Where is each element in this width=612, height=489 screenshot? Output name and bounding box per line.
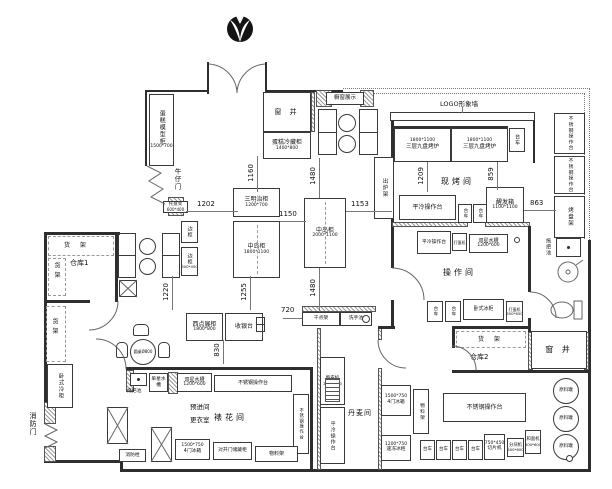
brand-logo: [227, 16, 253, 42]
store1-door-arc: [89, 301, 118, 330]
saloon-door-zigzag: [147, 166, 165, 204]
overlay-graphics: [0, 0, 612, 489]
entrance-door-arc: [237, 64, 265, 93]
entrance-door-arc: [209, 64, 237, 93]
oproom-door-arc: [392, 268, 424, 300]
hand-basin-tap: [576, 260, 583, 265]
store2-door-arc: [452, 346, 476, 370]
danish-door-arc: [378, 340, 406, 368]
floor-plan: LOGO形象墙 橱窗展示 窗 井 蛋糕冷藏柜 1400*800 蛋糕模型柜 15…: [0, 0, 612, 489]
hand-basin: [558, 262, 578, 282]
toilet-tank: [574, 301, 582, 319]
preroom-door-arc: [96, 339, 126, 369]
fire-door-zigzag: [45, 424, 57, 448]
hand-basin-drain: [566, 270, 570, 274]
